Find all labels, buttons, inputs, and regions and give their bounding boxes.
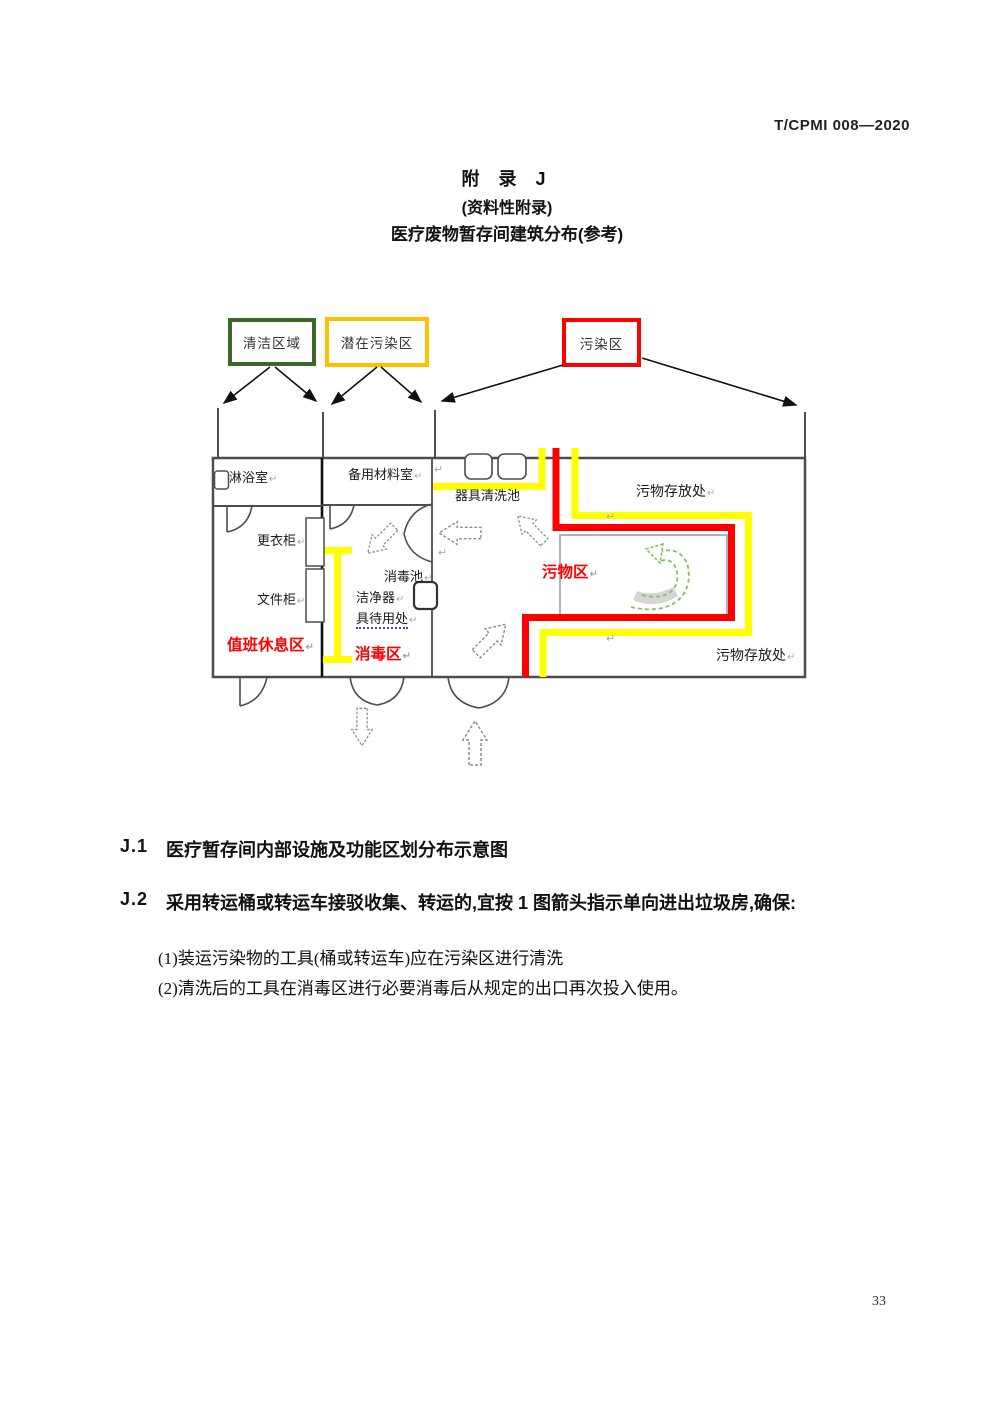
label-shower-room: 淋浴室↵ — [229, 471, 277, 485]
label-waste-storage-bottom: 污物存放处↵ — [716, 648, 795, 663]
flow-arrow-upleft — [511, 509, 552, 550]
wardrobe-cabinet — [306, 518, 324, 566]
label-clean-tools-line2: 具待用处↵ — [356, 612, 417, 626]
return-mark: ↵ — [409, 615, 417, 626]
legend-clean-label: 清洁区域 — [243, 332, 301, 352]
label-disinfection-area: 消毒区↵ — [355, 647, 411, 663]
clause-j1-text: 医疗暂存间内部设施及功能区划分布示意图 — [166, 836, 508, 862]
label-file-cabinet: 文件柜↵ — [257, 593, 305, 607]
label-waste-storage-top: 污物存放处↵ — [636, 484, 715, 499]
flow-arrow-up — [463, 721, 487, 765]
shower-stall — [215, 471, 229, 489]
appendix-title: 附 录 J — [0, 165, 1000, 191]
clause-j2-text: 采用转运桶或转运车接驳收集、转运的,宜按 1 图箭头指示单向进出垃圾房,确保: — [166, 889, 796, 915]
door-arc — [227, 506, 252, 532]
return-mark: ↵ — [396, 594, 404, 605]
clause-j2-item-2: (2)清洗后的工具在消毒区进行必要消毒后从规定的出口再次投入使用。 — [158, 974, 688, 999]
label-spare-material-room: 备用材料室↵ — [348, 468, 422, 482]
return-mark: ↵ — [434, 463, 443, 476]
disinfection-basin — [414, 582, 437, 609]
flow-arrow-downleft — [361, 520, 402, 561]
return-mark: ↵ — [787, 652, 795, 663]
door-arc — [404, 504, 432, 562]
return-mark: ↵ — [707, 488, 715, 499]
sink-basin — [498, 454, 526, 479]
return-mark: ↵ — [403, 651, 411, 662]
return-mark: ↵ — [606, 632, 615, 645]
door-arc — [330, 505, 354, 529]
clause-j1: J.1 医疗暂存间内部设施及功能区划分布示意图 — [120, 836, 508, 862]
clause-j2-item-1: (1)装运污染物的工具(桶或转运车)应在污染区进行清洗 — [158, 944, 563, 969]
label-tool-washing-pool: 器具清洗池 — [455, 489, 520, 502]
label-disinfection-pool: 消毒池↵ — [384, 570, 432, 584]
turn-arrow-green — [631, 544, 689, 609]
return-mark: ↵ — [414, 471, 422, 482]
return-mark: ↵ — [269, 474, 277, 485]
legend-pointer-arrows — [224, 358, 796, 405]
floor-plan-diagram — [180, 350, 840, 780]
appendix-subject: 医疗废物暂存间建筑分布(参考) — [0, 220, 1000, 245]
flow-arrows — [352, 509, 552, 765]
return-mark: ↵ — [297, 537, 305, 548]
legend-potential-label: 潜在污染区 — [341, 332, 414, 352]
label-duty-rest-area: 值班休息区↵ — [227, 638, 314, 654]
document-page: T/CPMI 008—2020 33 附 录 J (资料性附录) 医疗废物暂存间… — [0, 0, 1000, 1414]
return-mark: ↵ — [424, 573, 432, 584]
flow-arrow-left — [439, 522, 481, 545]
return-mark: ↵ — [606, 510, 615, 523]
appendix-type-note: (资料性附录) — [0, 194, 1000, 218]
label-waste-area: 污物区↵ — [542, 565, 598, 581]
return-mark: ↵ — [438, 546, 447, 559]
sink-basin — [465, 454, 492, 479]
return-mark: ↵ — [306, 642, 314, 653]
page-number: 33 — [872, 1294, 886, 1310]
standard-code: T/CPMI 008—2020 — [774, 117, 910, 134]
return-mark: ↵ — [297, 596, 305, 607]
door-arc — [240, 677, 267, 706]
door-arc — [448, 677, 509, 708]
door-arc — [350, 677, 404, 705]
return-mark: ↵ — [590, 569, 598, 580]
flow-arrow-upright — [468, 616, 514, 662]
label-wardrobe: 更衣柜↵ — [257, 534, 305, 548]
clause-j2: J.2 采用转运桶或转运车接驳收集、转运的,宜按 1 图箭头指示单向进出垃圾房,… — [120, 889, 796, 915]
flow-arrow-down — [352, 708, 372, 745]
label-clean-tools-line1: 洁净器↵ — [356, 591, 404, 605]
clause-j1-number: J.1 — [120, 836, 148, 862]
clause-j2-number: J.2 — [120, 889, 148, 915]
file-cabinet-box — [306, 569, 324, 622]
zone-guide-lines — [218, 408, 805, 457]
